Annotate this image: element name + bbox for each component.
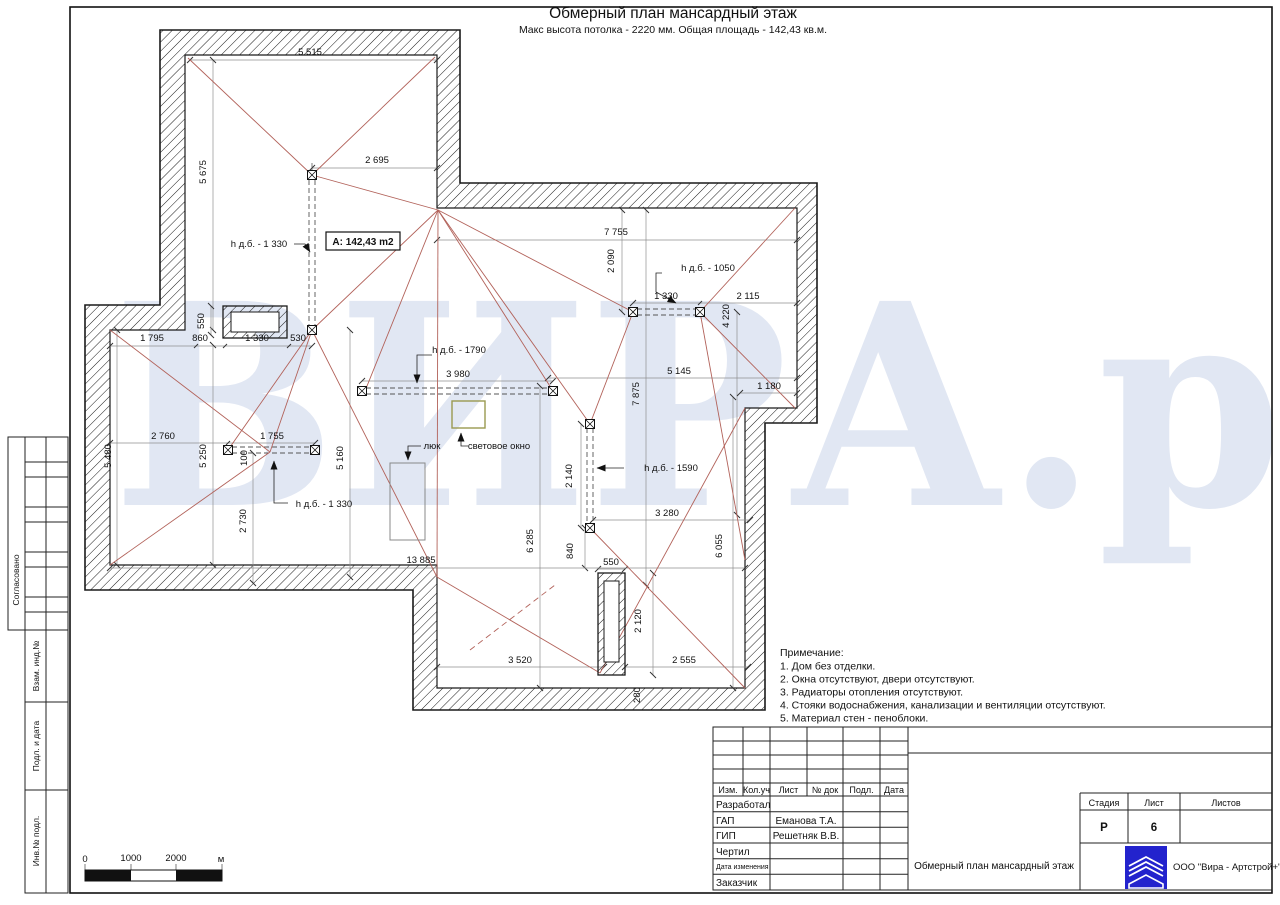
dim-label: 550	[603, 557, 619, 568]
dim-label: 1 330	[245, 333, 269, 344]
revision-col-header: Кол.уч	[743, 785, 770, 795]
dim-label: 5 160	[335, 446, 346, 470]
dim-label: 530	[290, 333, 306, 344]
dim-label: 2 555	[672, 655, 696, 666]
hatch-callout: люк	[424, 441, 442, 452]
stage-col-header: Листов	[1211, 798, 1240, 808]
post-marker	[308, 326, 317, 335]
company-logo-icon	[1125, 846, 1167, 889]
dim-label: 2 760	[151, 431, 175, 442]
stamp-label: Подл. и дата	[31, 721, 41, 772]
dim-label: 6 285	[525, 529, 536, 553]
stamp-label: Взам. инд.№	[31, 641, 41, 692]
drawing-sheet: 5 5155 6752 695h д.б. - 1 330A: 142,43 m…	[0, 0, 1280, 905]
height-callout: h д.б. - 1 330	[296, 499, 352, 510]
dim-label: 1 755	[260, 431, 284, 442]
post-marker	[224, 446, 233, 455]
dim-label: 2 140	[564, 464, 575, 488]
signature-row-value: Еманова Т.А.	[776, 816, 837, 827]
revision-col-header: Изм.	[718, 785, 737, 795]
dim-label: 3 280	[655, 508, 679, 519]
stage-col-header: Стадия	[1089, 798, 1120, 808]
height-callout: h д.б. - 1790	[432, 345, 486, 356]
skylight	[452, 401, 485, 428]
scale-tick-label: 2000	[165, 853, 186, 864]
sheet-number: 6	[1151, 822, 1157, 834]
notes-title: Примечание:	[780, 647, 844, 659]
dim-label: 2 730	[238, 509, 249, 533]
company-name: ООО "Вира - Артстрой+"	[1173, 862, 1280, 873]
revision-col-header: Лист	[779, 785, 799, 795]
dim-label: 280	[632, 687, 643, 703]
page-subtitle: Макс высота потолка - 2220 мм. Общая пло…	[519, 24, 827, 36]
height-callout: h д.б. - 1590	[644, 463, 698, 474]
left-stamp-column: Согласовано Взам. инд.№ Подл. и дата Инв…	[8, 437, 68, 893]
sheet-frame	[70, 7, 1272, 893]
post-marker	[586, 420, 595, 429]
note-item: 4. Стояки водоснабжения, канализации и в…	[780, 700, 1106, 712]
note-item: 2. Окна отсутствуют, двери отсутствуют.	[780, 674, 975, 686]
stamp-label: Инв.№ подл.	[31, 816, 41, 867]
signature-row-label: Чертил	[716, 847, 750, 858]
dim-label: 5 480	[103, 444, 114, 468]
signature-row-label: Заказчик	[716, 878, 758, 889]
dim-label: 840	[565, 543, 576, 559]
revision-col-header: Дата	[884, 785, 904, 795]
dim-label: 5 675	[198, 160, 209, 184]
stage-col-header: Лист	[1144, 798, 1164, 808]
signature-row-label: Дата изменения	[716, 864, 769, 871]
post-marker	[586, 524, 595, 533]
height-callout: h д.б. - 1 330	[231, 239, 287, 250]
note-item: 1. Дом без отделки.	[780, 661, 875, 673]
dim-label: 4 220	[721, 304, 732, 328]
chimney-bottom	[598, 573, 625, 675]
dim-label: 5 250	[198, 444, 209, 468]
dim-label: 860	[192, 333, 208, 344]
post-marker	[358, 387, 367, 396]
signature-row-value: Решетняк В.В.	[773, 831, 840, 842]
dim-label: 2 120	[633, 609, 644, 633]
post-marker	[629, 308, 638, 317]
access-hatch	[390, 463, 425, 540]
scale-tick-label: 0	[82, 854, 87, 865]
note-item: 5. Материал стен - пеноблоки.	[780, 713, 928, 725]
signature-row-label: ГИП	[716, 831, 736, 842]
document-title: Обмерный план мансардный этаж	[914, 860, 1074, 872]
dim-label: 550	[196, 313, 207, 329]
dim-label: 7 755	[604, 227, 628, 238]
revision-col-header: № док	[812, 785, 838, 795]
post-marker	[549, 387, 558, 396]
dim-label: 2 695	[365, 155, 389, 166]
notes: Примечание: 1. Дом без отделки. 2. Окна …	[780, 647, 1106, 725]
scale-tick-label: 1000	[120, 853, 141, 864]
dim-label: 100	[239, 450, 250, 466]
dim-label: 1 180	[757, 381, 781, 392]
height-callout: h д.б. - 1050	[681, 263, 735, 274]
stage-value: Р	[1100, 822, 1108, 834]
dim-label: 2 090	[606, 249, 617, 273]
area-label: A: 142,43 m2	[332, 237, 394, 248]
scale-bar: 0 1000 2000 м	[82, 853, 224, 881]
title-block: Изм. Кол.уч Лист № док Подл. Дата Разраб…	[713, 727, 1280, 890]
skylight-callout: световое окно	[468, 441, 530, 452]
post-marker	[308, 171, 317, 180]
dim-label: 3 520	[508, 655, 532, 666]
dim-label: 3 980	[446, 369, 470, 380]
revision-col-header: Подл.	[849, 785, 873, 795]
dim-label: 1 795	[140, 333, 164, 344]
dim-label: 13 885	[406, 555, 435, 566]
note-item: 3. Радиаторы отопления отсутствуют.	[780, 687, 963, 699]
scale-unit-label: м	[218, 854, 225, 865]
dim-label: 7 875	[631, 382, 642, 406]
floor-plan: 5 5155 6752 695h д.б. - 1 330A: 142,43 m…	[85, 30, 817, 710]
dim-label: 1 330	[654, 291, 678, 302]
signature-row-label: Разработал	[716, 799, 771, 811]
page-title: Обмерный план мансардный этаж	[549, 5, 797, 22]
signature-row-label: ГАП	[716, 816, 735, 827]
dim-label: 5 515	[298, 47, 322, 58]
dim-label: 2 115	[736, 291, 759, 302]
dim-label: 5 145	[667, 366, 691, 377]
post-marker	[311, 446, 320, 455]
post-marker	[696, 308, 705, 317]
dim-label: 6 055	[714, 534, 725, 558]
stamp-label: Согласовано	[11, 554, 21, 605]
